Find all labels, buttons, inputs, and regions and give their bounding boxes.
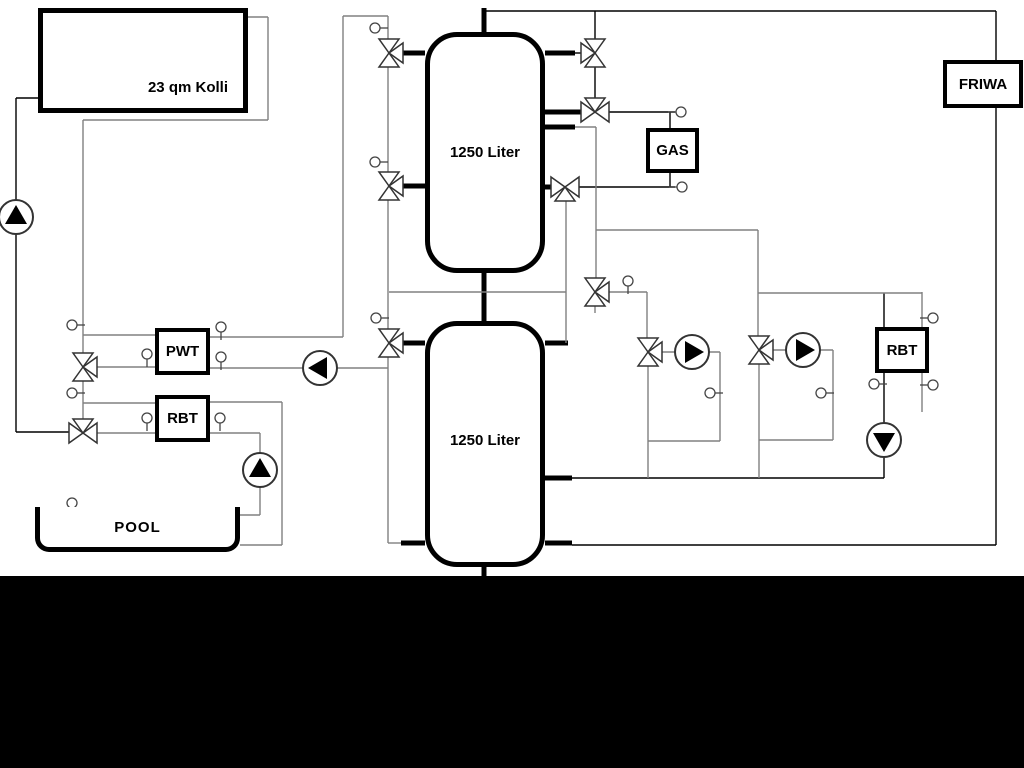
solar-collector-label: 23 qm Kolli	[148, 79, 228, 96]
pwt-heat-exchanger-box: PWT	[155, 328, 210, 375]
rbt-left-box: RBT	[155, 395, 210, 442]
sensor-icon	[928, 380, 938, 390]
friwa-label: FRIWA	[959, 76, 1007, 93]
gas-boiler-label: GAS	[656, 142, 689, 159]
rbt-left-label: RBT	[167, 410, 198, 427]
sensor-icon	[67, 388, 77, 398]
sensor-icon	[215, 413, 225, 423]
sensor-icon	[816, 388, 826, 398]
solar-collector-box: 23 qm Kolli	[38, 8, 248, 113]
sensor-icon	[370, 157, 380, 167]
sensor-icon	[677, 182, 687, 192]
pool-basin: POOL	[35, 507, 240, 552]
sensor-icon	[67, 320, 77, 330]
schematic-page: 23 qm Kolli 1250 Liter 1250 Liter GAS FR…	[0, 0, 1024, 768]
buffer-tank-bottom-label: 1250 Liter	[425, 432, 545, 449]
pool-label: POOL	[114, 519, 161, 536]
sensor-icon	[623, 276, 633, 286]
sensor-icon	[370, 23, 380, 33]
rbt-right-box: RBT	[875, 327, 929, 373]
buffer-tank-top-label: 1250 Liter	[425, 144, 545, 161]
rbt-right-label: RBT	[887, 342, 918, 359]
friwa-box: FRIWA	[943, 60, 1023, 108]
sensor-icon	[216, 352, 226, 362]
bottom-black-band	[0, 576, 1024, 768]
hydraulic-diagram: 23 qm Kolli 1250 Liter 1250 Liter GAS FR…	[0, 0, 1024, 577]
sensor-icon	[705, 388, 715, 398]
pwt-label: PWT	[166, 343, 199, 360]
sensor-icon	[216, 322, 226, 332]
sensor-icon	[142, 349, 152, 359]
sensor-icon	[869, 379, 879, 389]
sensor-icon	[676, 107, 686, 117]
gas-boiler-box: GAS	[646, 128, 699, 173]
sensor-icon	[928, 313, 938, 323]
sensor-icon	[371, 313, 381, 323]
sensor-icon	[142, 413, 152, 423]
